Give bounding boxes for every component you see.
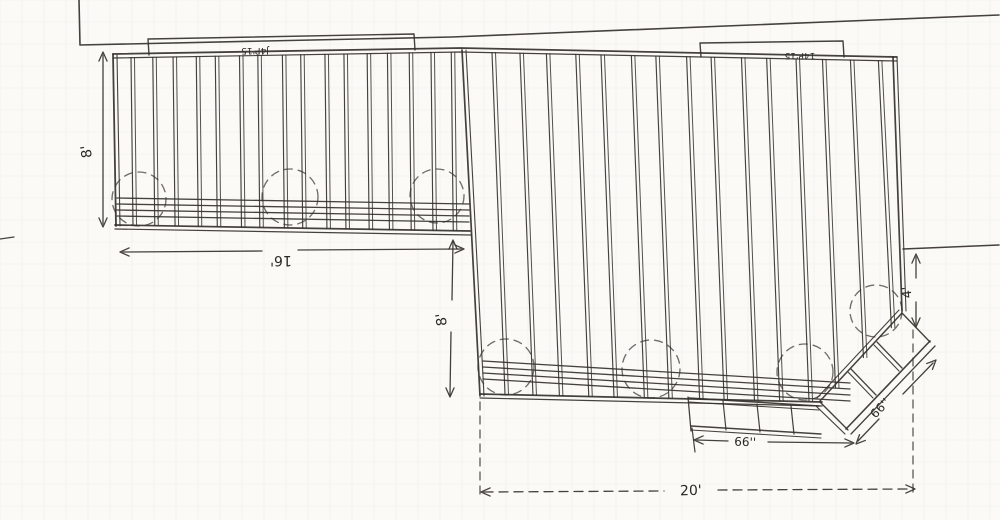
dim-20ft-label: 20' <box>680 483 702 500</box>
ledger-right-label: 14P'15 <box>785 50 816 60</box>
dim-66in-step-label: 66'' <box>734 435 756 450</box>
dim-8ft-left-label: 8' <box>78 144 96 159</box>
ledger-left-label: J4P'15 <box>241 45 270 55</box>
dim-16ft-label: 16' <box>270 252 292 268</box>
scanned-framing-sketch: 8'16'8'4'20'66''66''J4P'1514P'15 <box>0 0 1000 520</box>
dim-4ft-label: 4' <box>899 286 915 299</box>
deck-framing-plan-drawing: 8'16'8'4'20'66''66''J4P'1514P'15 <box>0 0 1000 520</box>
dim-8ft-mid-label: 8' <box>433 312 451 327</box>
